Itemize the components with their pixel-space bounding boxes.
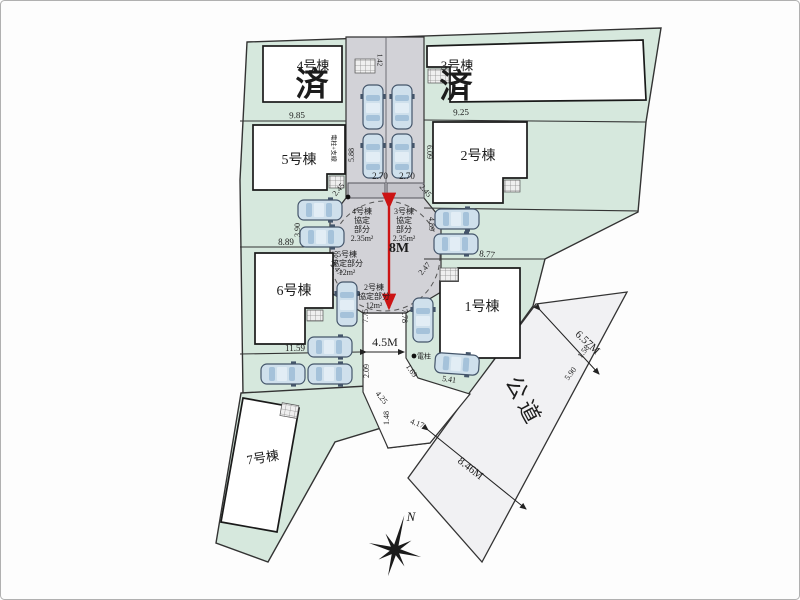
dim: 9.85 xyxy=(289,110,306,121)
porch-hatch xyxy=(504,180,520,192)
car xyxy=(308,361,352,386)
compass-n-label: N xyxy=(406,509,417,524)
agreement: 3号棟 xyxy=(394,206,414,216)
dim: 2.70 xyxy=(399,171,415,181)
utility-pole-dot xyxy=(346,195,351,200)
dim: 5.41 xyxy=(442,374,457,385)
agreement: 2号棟 xyxy=(364,282,384,292)
agreement: 部分 xyxy=(354,224,370,234)
dim: 5.88 xyxy=(347,148,356,162)
agreement: 協定 xyxy=(396,215,412,225)
dim: 7.78 xyxy=(400,309,409,323)
site-plan-page: 4号棟済3号棟済5号棟2号棟6号棟1号棟7号棟9.859.251.425.886… xyxy=(0,0,800,600)
agreement: 12m² xyxy=(366,301,383,310)
lot4-sold: 済 xyxy=(296,66,330,104)
dim: 1.42 xyxy=(375,54,383,67)
dim: 7.75 xyxy=(361,309,370,323)
dim: 1.48 xyxy=(382,411,391,425)
porch-hatch xyxy=(307,310,323,321)
agreement: 4号棟 xyxy=(352,206,372,216)
dim: 11.59 xyxy=(285,343,305,353)
porch-hatch xyxy=(280,403,299,419)
car xyxy=(298,197,342,222)
car xyxy=(334,282,359,326)
dim: 8.77 xyxy=(479,248,496,260)
road-width-8m: 8M xyxy=(389,241,409,256)
lot1-name: 1号棟 xyxy=(465,299,500,315)
porch-hatch xyxy=(440,268,458,281)
agreement: 2.35m² xyxy=(351,234,374,243)
agreement: 協定 xyxy=(354,215,370,225)
util-label: 電柱+支線 xyxy=(330,134,338,161)
parking-stall-left xyxy=(348,183,385,198)
porch-hatch xyxy=(355,59,375,73)
parking-stall-right xyxy=(387,183,424,198)
utility-pole-dot xyxy=(412,354,417,359)
road-width-45m: 4.5M xyxy=(372,335,398,349)
dim: 2.09 xyxy=(362,364,371,378)
car xyxy=(435,206,479,231)
lot2-name: 2号棟 xyxy=(461,148,496,164)
car xyxy=(360,85,385,129)
car xyxy=(389,85,414,129)
lot6-name: 6号棟 xyxy=(277,283,312,299)
dim: 3.90 xyxy=(293,223,302,237)
dim: 2.70 xyxy=(372,171,388,181)
dim: 8.89 xyxy=(278,237,294,247)
dim: 6.09 xyxy=(425,145,434,159)
agreement: 部分 xyxy=(396,224,412,234)
car xyxy=(300,224,344,249)
car xyxy=(434,231,478,256)
lot5-name: 5号棟 xyxy=(282,152,317,168)
car xyxy=(261,361,305,386)
dim: 9.25 xyxy=(453,107,470,118)
dim: 4.89 xyxy=(427,217,436,231)
site-plan-drawing: 4号棟済3号棟済5号棟2号棟6号棟1号棟7号棟9.859.251.425.886… xyxy=(0,0,800,600)
agreement: 5号棟 xyxy=(337,249,357,259)
lot3-sold: 済 xyxy=(440,68,474,106)
pole-label: 電柱 xyxy=(417,352,431,361)
agreement: 協定部分 xyxy=(358,291,390,301)
car xyxy=(308,334,352,359)
car xyxy=(410,298,435,342)
